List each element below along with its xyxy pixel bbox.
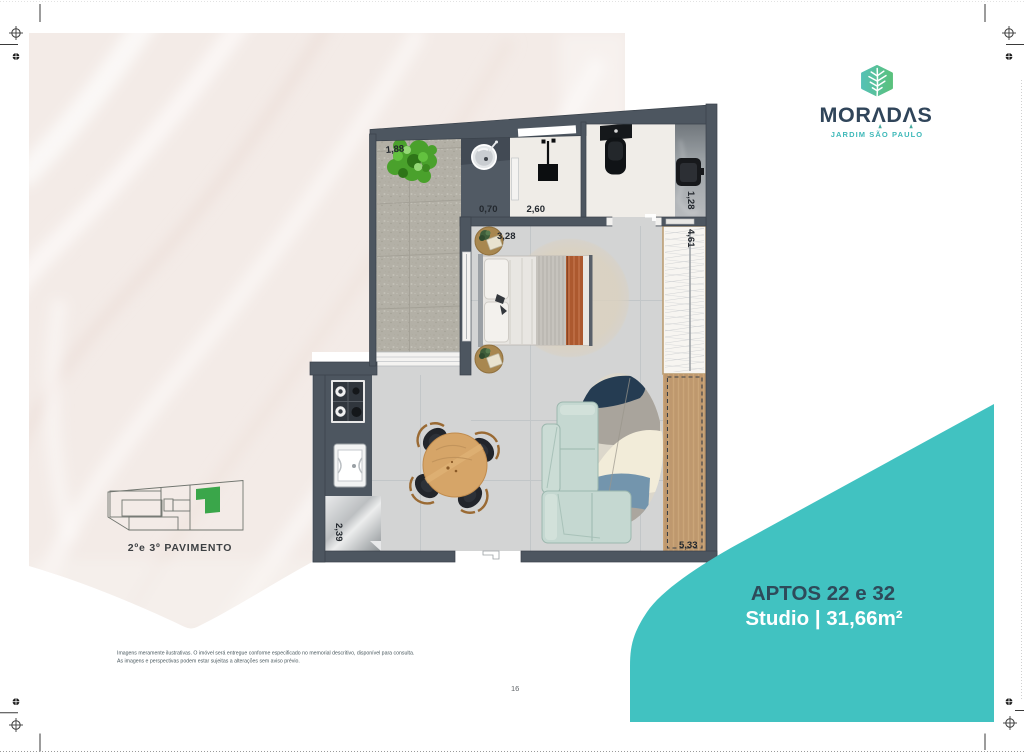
svg-text:MORΛDΛS: MORΛDΛS: [820, 103, 933, 127]
svg-text:3,28: 3,28: [497, 231, 516, 242]
svg-text:1,88: 1,88: [385, 143, 404, 156]
svg-text:5,33: 5,33: [679, 540, 698, 551]
svg-text:0,70: 0,70: [479, 204, 498, 215]
svg-text:2,60: 2,60: [527, 204, 546, 215]
svg-text:As imagens e perspectivas pode: As imagens e perspectivas podem estar su…: [117, 659, 300, 665]
svg-text:2ºe 3º PAVIMENTO: 2ºe 3º PAVIMENTO: [128, 542, 233, 554]
svg-text:Studio | 31,66m²: Studio | 31,66m²: [745, 607, 902, 630]
svg-text:Imagens meramente ilustrativas: Imagens meramente ilustrativas. O imóvel…: [117, 651, 414, 657]
svg-text:1,28: 1,28: [685, 191, 696, 210]
svg-text:4,61: 4,61: [685, 229, 696, 248]
svg-text:JARDIM SÃO PAULO: JARDIM SÃO PAULO: [831, 130, 923, 139]
svg-text:APTOS 22 e 32: APTOS 22 e 32: [751, 582, 895, 605]
svg-text:16: 16: [511, 684, 519, 693]
svg-text:2,39: 2,39: [333, 523, 344, 542]
